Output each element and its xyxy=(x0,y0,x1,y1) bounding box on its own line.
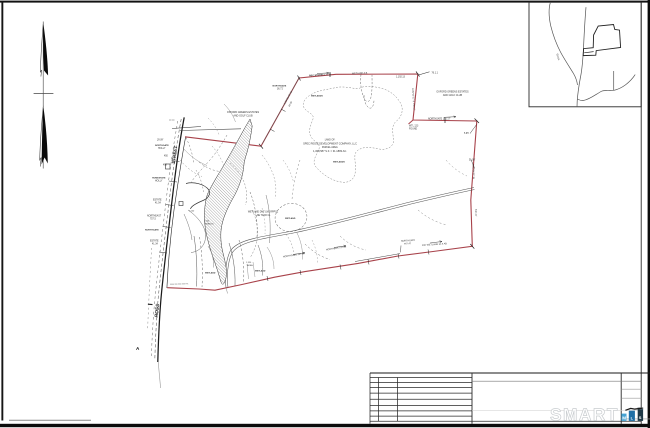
svg-text:NORTHGATE: NORTHGATE xyxy=(155,144,169,147)
svg-text:OXFORD GREENS ESTATES: OXFORD GREENS ESTATES xyxy=(436,91,469,94)
svg-text:1,500: 1,500 xyxy=(189,211,195,213)
svg-text:51.08': 51.08' xyxy=(469,160,476,162)
svg-text:36.71': 36.71' xyxy=(277,88,284,90)
svg-text:41.34: 41.34 xyxy=(152,244,158,246)
svg-text:757.5: 757.5 xyxy=(150,219,156,221)
svg-text:1,192.13: 1,192.13 xyxy=(396,77,406,79)
svg-text:ESTATE: ESTATE xyxy=(153,199,162,202)
svg-text:WETLAND A B: WETLAND A B xyxy=(352,72,368,76)
svg-text:ESTATE: ESTATE xyxy=(150,240,159,243)
svg-text:NORTHGATE 151.17': NORTHGATE 151.17' xyxy=(428,118,451,121)
svg-text:OXFORD GREENS ESTATES: OXFORD GREENS ESTATES xyxy=(227,111,260,114)
svg-text:WETLANDS: WETLANDS xyxy=(311,95,323,98)
svg-text:AREA LK: AREA LK xyxy=(205,222,214,225)
svg-text:SPEC RIDGE DEVELOPMENT COMPANY: SPEC RIDGE DEVELOPMENT COMPANY, LLC xyxy=(303,142,357,145)
svg-text:S: S xyxy=(639,415,642,420)
svg-text:29.09': 29.09' xyxy=(156,140,164,142)
svg-text:xx xxx: xx xxx xyxy=(169,120,175,122)
svg-text:AREA: AREA xyxy=(247,264,253,267)
svg-text:SMART: SMART xyxy=(550,405,619,425)
svg-text:HOLLY: HOLLY xyxy=(158,148,166,150)
svg-text:NORTHGATE: NORTHGATE xyxy=(145,229,159,232)
svg-text:2,500: 2,500 xyxy=(204,221,210,223)
svg-text:M: M xyxy=(622,416,626,421)
svg-text:846.41': 846.41' xyxy=(474,209,476,217)
svg-text:FOUND: FOUND xyxy=(409,128,418,130)
svg-text:LAND OF:: LAND OF: xyxy=(325,139,336,142)
svg-text:1,350: 1,350 xyxy=(246,262,252,264)
svg-text:5.65': 5.65' xyxy=(464,133,469,135)
svg-text:WETLAND: WETLAND xyxy=(285,217,296,220)
svg-text:HOLLY: HOLLY xyxy=(155,181,163,183)
svg-text:LNE TAOR CL: LNE TAOR CL xyxy=(256,214,272,217)
svg-text:NORTHEAST: NORTHEAST xyxy=(147,215,162,218)
svg-text:PARCEL AREA:: PARCEL AREA: xyxy=(322,146,339,149)
svg-text:WETLAND DMT LNE RPPOL: WETLAND DMT LNE RPPOL xyxy=(248,211,279,214)
svg-text:HOMESTATE: HOMESTATE xyxy=(152,177,166,180)
svg-text:WETLANDS: WETLANDS xyxy=(333,161,345,164)
svg-text:WTL 123: WTL 123 xyxy=(409,126,419,128)
svg-text:WETLAND: WETLAND xyxy=(255,270,266,273)
svg-text:NORTHGATE: NORTHGATE xyxy=(273,85,287,88)
svg-text:WETLAND: WETLAND xyxy=(205,271,216,274)
svg-text:AND GOLF CLUB: AND GOLF CLUB xyxy=(443,94,463,97)
svg-text:76.1.1: 76.1.1 xyxy=(432,73,439,75)
svg-text:AND GOLF CLUB: AND GOLF CLUB xyxy=(233,115,253,118)
svg-text:1,368,587 S.F. = 31.1883 AC.: 1,368,587 S.F. = 31.1883 AC. xyxy=(313,149,347,153)
svg-text:41.54: 41.54 xyxy=(155,203,161,205)
